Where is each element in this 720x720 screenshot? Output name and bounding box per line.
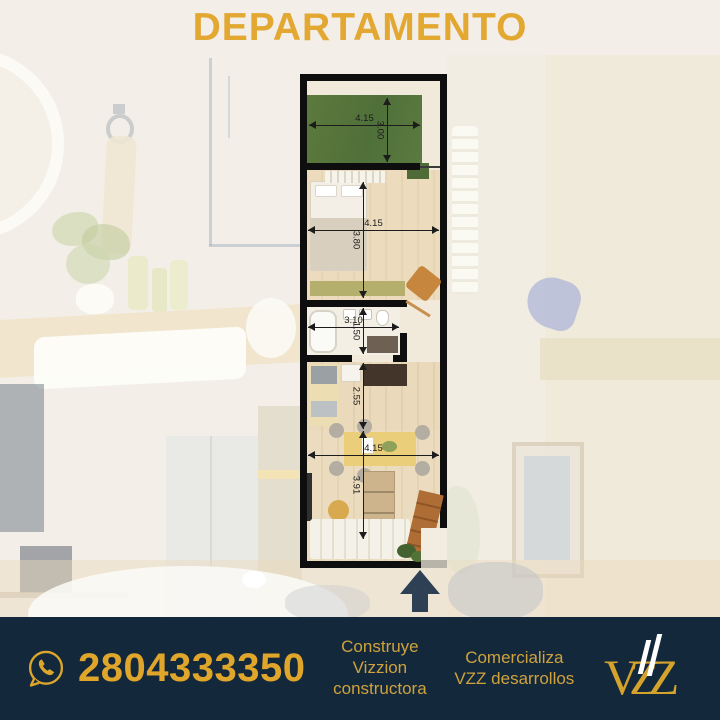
seller-line: Comercializa [454,648,574,669]
coffee-cup [242,571,266,588]
ceiling-band [540,338,720,380]
arrow-stem [412,594,428,612]
curtain [325,171,385,183]
dining-chair [329,423,344,438]
arrow-head [400,570,440,594]
toilet [246,298,296,358]
kitchen-appliance [311,401,337,417]
dim-kitchen-height-arrow: 2.55 [363,363,364,429]
builder-line: Construye [333,637,427,658]
phone-number: 2804333350 [78,646,305,691]
dim-bedroom-width-arrow: 4.15 [308,230,439,231]
entry-threshold [421,560,447,568]
tv-unit [307,473,312,521]
dim-terrace-width-arrow: 4.15 [309,125,420,126]
dim-living-height-arrow: 3.91 [363,431,364,539]
dim-bathroom-height-label: 1.50 [351,322,362,341]
dim-living-width-arrow: 4.15 [308,455,439,456]
coffee-table [328,500,349,521]
wall-tv [0,384,44,532]
dining-chair [415,425,430,440]
kitchen-unit [341,364,361,382]
dim-terrace-height-arrow: 3.00 [387,98,388,162]
wall-bedroom-bathroom [307,300,407,307]
door-leaf [405,300,430,317]
wall-stub-vertical [400,333,407,362]
floor-plan: 4.15 3.00 4.15 3.80 3.10 1.50 2.55 4.15 … [300,74,447,568]
wall-bathroom-kitchen [307,355,352,362]
entrance-arrow-icon [400,570,440,612]
shower-glass-edge [209,58,212,246]
vzz-logo: VZZ [602,630,694,708]
plant-leaf [66,244,110,284]
wardrobe [364,364,407,386]
chair-photo [285,585,370,621]
towel-ring-hook [113,104,125,114]
towel-radiator [452,126,478,294]
page-title: DEPARTAMENTO [0,6,720,50]
round-mirror [0,48,64,240]
dim-terrace-width-label: 4.15 [355,113,374,124]
wall-terrace-bedroom [307,163,420,170]
bathtub [309,310,337,353]
dim-terrace-height-label: 3.00 [375,121,386,140]
dim-kitchen-height-label: 2.55 [351,387,362,406]
bathroom-sink [34,326,246,389]
dim-bedroom-width-label: 4.15 [364,218,383,229]
toiletry-bottle [170,260,188,310]
dining-chair [415,461,430,476]
phone-contact: 2804333350 [26,646,305,691]
terrace-window-line [420,166,440,168]
shower-bar [228,76,230,138]
seller-credit: Comercializa VZZ desarrollos [454,648,574,689]
dim-living-width-label: 4.15 [364,443,383,454]
door-glass-panel [524,456,570,560]
bathroom-vanity [367,336,398,353]
under-cabinet-light [258,470,302,479]
builder-line: constructora [333,679,427,700]
toiletry-bottle [128,256,148,310]
bedroom-rug [310,281,405,296]
whatsapp-icon [26,649,66,689]
dining-chair [329,461,344,476]
vzz-logo-text: VZZ [604,648,668,706]
dim-bedroom-height-label: 3.80 [351,231,362,250]
pillow [315,185,337,197]
toilet [376,310,389,326]
bed [310,181,367,271]
table-plant [382,441,397,452]
builder-credit: Construye Vizzion constructora [333,637,427,699]
sofa [310,519,410,559]
chair-photo [448,562,543,620]
kitchen-appliance [311,366,337,384]
footer-bar: 2804333350 Construye Vizzion constructor… [0,617,720,720]
toiletry-bottle [152,268,167,312]
dim-bedroom-height-arrow: 3.80 [363,182,364,298]
plant-pot [76,284,114,314]
builder-line: Vizzion [333,658,427,679]
dim-living-height-label: 3.91 [351,476,362,495]
dim-bathroom-height-arrow: 1.50 [363,308,364,354]
shower-glass-edge [209,244,301,247]
seller-line: VZZ desarrollos [454,669,574,690]
room-terrace [307,95,422,163]
